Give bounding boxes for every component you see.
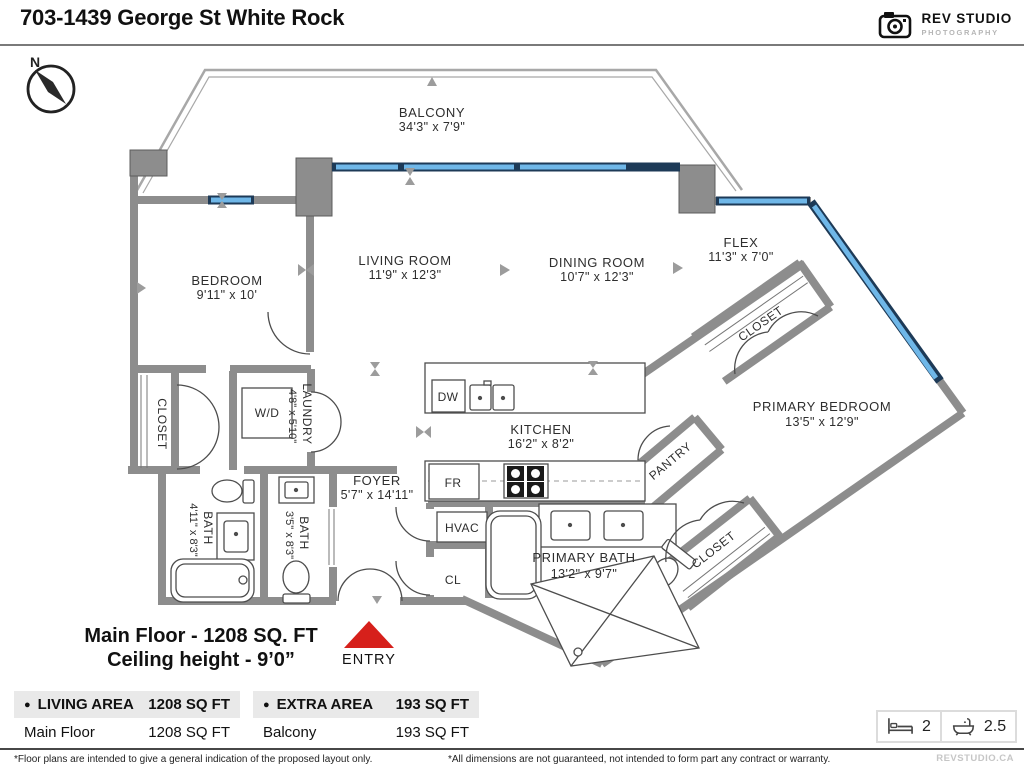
room-label-living-room: LIVING ROOM <box>358 253 451 268</box>
summary-ceiling: Ceiling height - 9’0” <box>107 649 295 671</box>
room-label-dining-room: DINING ROOM <box>549 255 645 270</box>
room-dims-kitchen: 16'2" x 8'2" <box>508 437 574 451</box>
label-washer-dryer: W/D <box>255 406 280 420</box>
room-label-closet-primary: CLOSET <box>689 528 738 571</box>
floor-plan: N <box>0 0 1024 690</box>
floor-summary: Main Floor - 1208 SQ. FT Ceiling height … <box>84 625 317 671</box>
extra-area-label: EXTRA AREA <box>277 696 373 713</box>
table-row: Main Floor 1208 SQ FT <box>14 718 240 741</box>
room-label-flex: FLEX <box>724 235 759 250</box>
room-dims-balcony: 34'3" x 7'9" <box>399 120 465 134</box>
row-value: 193 SQ FT <box>396 724 469 741</box>
extra-area-total: 193 SQ FT <box>396 696 469 713</box>
baths-count: 2.5 <box>984 718 1006 736</box>
bullet-icon: ● <box>263 699 270 711</box>
room-label-bedroom: BEDROOM <box>191 273 262 288</box>
room-dims-flex: 11'3" x 7'0" <box>708 250 773 264</box>
extra-area-header: ●EXTRA AREA 193 SQ FT <box>253 691 479 718</box>
website-label: REVSTUDIO.CA <box>936 753 1014 764</box>
room-label-foyer: FOYER <box>353 473 401 488</box>
room-label-closet-bedroom: CLOSET <box>155 398 169 450</box>
baths-badge: 2.5 <box>940 712 1015 741</box>
label-closet-cl: CL <box>445 573 461 587</box>
stats-badges: 2 2.5 <box>876 710 1017 743</box>
bullet-icon: ● <box>24 699 31 711</box>
room-dims-living-room: 11'9" x 12'3" <box>369 268 442 282</box>
living-area-label: LIVING AREA <box>38 696 134 713</box>
room-dims-dining-room: 10'7" x 12'3" <box>560 270 634 284</box>
area-tables: ●LIVING AREA 1208 SQ FT Main Floor 1208 … <box>14 691 479 741</box>
footer-divider <box>0 748 1024 750</box>
wall-pillars <box>130 150 715 216</box>
room-dims-bedroom: 9'11" x 10' <box>197 288 258 302</box>
row-label: Balcony <box>263 724 316 741</box>
room-label-balcony: BALCONY <box>399 105 465 120</box>
room-label-laundry: LAUNDRY <box>300 383 314 444</box>
disclaimer-left: *Floor plans are intended to give a gene… <box>14 754 372 765</box>
room-label-primary-bath: PRIMARY BATH <box>532 550 635 565</box>
summary-area: Main Floor - 1208 SQ. FT <box>84 625 317 647</box>
beds-count: 2 <box>922 718 931 736</box>
entry-label: ENTRY <box>342 652 396 668</box>
room-dims-primary-bedroom: 13'5" x 12'9" <box>785 415 859 429</box>
room-dims-bath-1: 4'11" x 8'3" <box>187 503 199 556</box>
room-label-bath-1: BATH <box>201 511 215 545</box>
disclaimer-right: *All dimensions are not guaranteed, not … <box>448 754 830 765</box>
compass: N <box>28 54 74 112</box>
beds-badge: 2 <box>878 712 940 741</box>
room-dims-primary-bath: 13'2" x 9'7" <box>551 567 617 581</box>
label-hvac: HVAC <box>445 521 479 535</box>
living-area-table: ●LIVING AREA 1208 SQ FT Main Floor 1208 … <box>14 691 240 741</box>
row-value: 1208 SQ FT <box>148 724 230 741</box>
row-label: Main Floor <box>24 724 95 741</box>
bed-icon <box>887 717 914 736</box>
entry-marker: ENTRY <box>342 621 396 668</box>
room-label-bath-2: BATH <box>297 516 311 550</box>
room-dims-laundry: 4'8" x 5'10" <box>286 389 298 443</box>
room-label-primary-bedroom: PRIMARY BEDROOM <box>753 399 892 414</box>
room-dims-foyer: 5'7" x 14'11" <box>341 488 414 502</box>
room-label-kitchen: KITCHEN <box>510 422 571 437</box>
compass-north-label: N <box>30 54 40 70</box>
living-area-total: 1208 SQ FT <box>148 696 230 713</box>
bath-icon <box>951 717 976 736</box>
extra-area-table: ●EXTRA AREA 193 SQ FT Balcony 193 SQ FT <box>253 691 479 741</box>
living-area-header: ●LIVING AREA 1208 SQ FT <box>14 691 240 718</box>
label-fridge: FR <box>445 476 462 490</box>
label-dishwasher: DW <box>438 390 459 404</box>
room-dims-bath-2: 3'5" x 8'3" <box>283 511 295 559</box>
table-row: Balcony 193 SQ FT <box>253 718 479 741</box>
